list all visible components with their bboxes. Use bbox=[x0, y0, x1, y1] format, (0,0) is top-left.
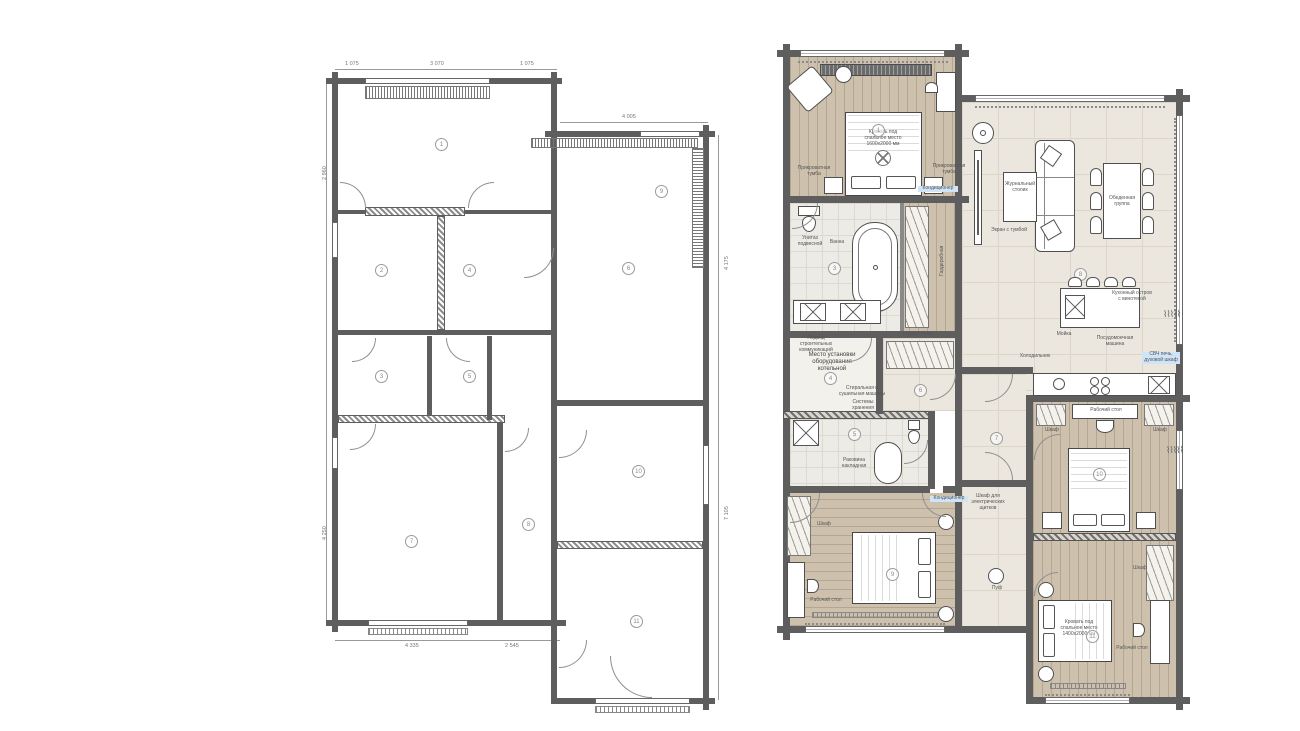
burner bbox=[1101, 386, 1110, 395]
wall-hatched bbox=[1033, 533, 1176, 541]
pillow bbox=[851, 176, 881, 189]
dining-chair bbox=[1090, 216, 1102, 234]
wall-interior bbox=[338, 330, 557, 335]
dim-label: 4 335 bbox=[405, 643, 419, 649]
floor-lamp-center bbox=[980, 130, 986, 136]
curtain-wave bbox=[1045, 690, 1130, 696]
bed3 bbox=[1068, 448, 1130, 532]
bed4-chair bbox=[1133, 623, 1145, 637]
closet-label: Шкаф bbox=[1128, 566, 1152, 572]
door-arc bbox=[505, 428, 529, 452]
dim-label: 4 175 bbox=[724, 256, 730, 270]
dim-label: 7 105 bbox=[724, 506, 730, 520]
room-number: 6 bbox=[622, 262, 635, 275]
ac-label: Кондиционер bbox=[918, 186, 958, 192]
window bbox=[800, 50, 945, 57]
room-number: 10 bbox=[632, 465, 645, 478]
dim-label: 2 960 bbox=[322, 166, 328, 180]
room-number: 4 bbox=[824, 372, 837, 385]
desk-label: Рабочий стол bbox=[1084, 408, 1128, 414]
dim-label: 4 005 bbox=[622, 114, 636, 120]
room-number: 2 bbox=[375, 264, 388, 277]
island-sink bbox=[1065, 295, 1085, 319]
wall-hatched bbox=[437, 216, 445, 330]
curtain-band bbox=[812, 612, 938, 618]
bed3-wardrobe bbox=[1036, 404, 1066, 426]
coffee-table bbox=[1003, 172, 1037, 222]
nightstand-label: Прикроватная тумба bbox=[793, 166, 835, 178]
tv-screen bbox=[977, 160, 979, 235]
desk-label: Рабочий стол bbox=[806, 598, 846, 604]
floorplan-canvas: 1 075 3 070 1 075 4 005 2 960 4 250 4 33… bbox=[0, 0, 1300, 731]
room-number: 4 bbox=[463, 264, 476, 277]
wall-interior bbox=[1026, 395, 1190, 402]
bar-stool bbox=[1068, 277, 1082, 287]
bathtub-drain bbox=[873, 265, 878, 270]
stool bbox=[925, 82, 938, 93]
window bbox=[368, 620, 468, 626]
room-number: 6 bbox=[914, 384, 927, 397]
window bbox=[1176, 430, 1183, 490]
window bbox=[703, 445, 709, 505]
burner bbox=[1090, 386, 1099, 395]
sink-label: Мойка bbox=[1052, 332, 1076, 338]
bed4-wardrobe bbox=[1146, 545, 1174, 601]
vanity-sink bbox=[800, 303, 826, 321]
wall-hatched bbox=[557, 541, 703, 549]
dining-chair bbox=[1142, 216, 1154, 234]
room-number: 9 bbox=[655, 185, 668, 198]
burner bbox=[1101, 377, 1110, 386]
pouf-label: Пуф bbox=[990, 586, 1004, 592]
wall-hatched bbox=[338, 415, 505, 423]
room-number: 3 bbox=[828, 262, 841, 275]
fridge-label: Холодильник bbox=[1016, 354, 1054, 360]
door-arc bbox=[340, 182, 366, 208]
wall bbox=[332, 72, 338, 632]
dim-label: 2 545 bbox=[505, 643, 519, 649]
desk-label: Рабочий стол bbox=[1112, 646, 1152, 652]
vanity-sink bbox=[840, 303, 866, 321]
pillow bbox=[886, 176, 916, 189]
dining-chair bbox=[1142, 192, 1154, 210]
nightstand-round bbox=[938, 606, 954, 622]
wall-interior bbox=[928, 411, 935, 489]
curtain-wave bbox=[805, 619, 945, 625]
wall-interior bbox=[943, 486, 962, 493]
room-number: 11 bbox=[630, 615, 643, 628]
coffee-table-label: Журнальный столик bbox=[1004, 182, 1036, 194]
dim-line-top2 bbox=[560, 122, 708, 123]
wall-interior bbox=[487, 336, 492, 420]
window bbox=[365, 78, 490, 84]
window bbox=[1045, 697, 1130, 704]
room-number: 3 bbox=[375, 370, 388, 383]
wardrobe-rail bbox=[905, 206, 929, 328]
wall-hatched bbox=[783, 411, 935, 419]
bar-stool bbox=[1086, 277, 1100, 287]
curtain-wave bbox=[798, 57, 948, 63]
wall-interior bbox=[962, 480, 1033, 487]
window bbox=[805, 626, 945, 633]
burner bbox=[1090, 377, 1099, 386]
room-number: 1 bbox=[435, 138, 448, 151]
window bbox=[332, 222, 338, 258]
curtain-wave bbox=[975, 102, 1165, 108]
sofa-line bbox=[1036, 215, 1074, 216]
dishwasher-label: Посудомоечная машина bbox=[1090, 336, 1140, 348]
room-number: 9 bbox=[886, 568, 899, 581]
utilities-label: Подвод строительных коммуникаций bbox=[794, 336, 838, 353]
room-number: 11 bbox=[1086, 630, 1099, 643]
sofa-line bbox=[1036, 177, 1074, 178]
wardrobe-label: Гардеробная bbox=[940, 246, 946, 276]
room-number: 10 bbox=[1093, 468, 1106, 481]
wardrobe-label: Гардеробная bbox=[898, 332, 938, 338]
wardrobe-hatch bbox=[531, 138, 698, 148]
door-arc bbox=[559, 430, 587, 458]
window-sill bbox=[595, 706, 690, 713]
dim-label: 3 070 bbox=[430, 61, 444, 67]
hall-wardrobe bbox=[886, 341, 954, 369]
room-number: 5 bbox=[463, 370, 476, 383]
room-number: 8 bbox=[522, 518, 535, 531]
balcony-hatch bbox=[365, 86, 490, 99]
pillow bbox=[1101, 514, 1125, 526]
closet-label: Шкаф bbox=[1148, 428, 1172, 434]
radiator-coil: ⌇⌇⌇⌇⌇ bbox=[1163, 312, 1173, 342]
dim-label: 1 075 bbox=[345, 61, 359, 67]
window-sill bbox=[368, 628, 468, 635]
closet-label: Шкаф bbox=[1040, 428, 1064, 434]
door-arc bbox=[524, 248, 554, 278]
door-arc bbox=[610, 656, 652, 698]
wall-interior bbox=[427, 336, 432, 416]
bed3-wardrobe bbox=[1144, 404, 1174, 426]
pillow bbox=[1073, 514, 1097, 526]
dining-chair bbox=[1090, 192, 1102, 210]
oven-label: СВЧ печь, духовой шкаф bbox=[1142, 352, 1180, 364]
bed2-desk bbox=[787, 562, 805, 618]
dim-label: 1 075 bbox=[520, 61, 534, 67]
dining-label: Обеденная группа bbox=[1106, 196, 1138, 208]
nightstand-round bbox=[1038, 666, 1054, 682]
basin-label: Раковина накладная bbox=[836, 458, 872, 470]
window bbox=[640, 131, 700, 137]
dim-line-right bbox=[718, 135, 719, 700]
bar-stool bbox=[1122, 277, 1136, 287]
wall-interior bbox=[783, 486, 930, 493]
bed2-chair bbox=[807, 579, 819, 593]
bed3-chair bbox=[1096, 420, 1114, 433]
window bbox=[332, 437, 338, 469]
dim-line-top bbox=[335, 69, 557, 70]
door-arc bbox=[559, 640, 587, 668]
nightstand bbox=[1042, 512, 1062, 529]
toilet-label: Унитаз подвесной bbox=[792, 236, 828, 248]
bathtub bbox=[852, 222, 898, 312]
tv-label: Экран с тумбой bbox=[986, 228, 1032, 234]
dresser bbox=[936, 72, 956, 112]
nightstand-label: Прикроватная тумба bbox=[928, 164, 970, 176]
dim-label: 4 250 bbox=[322, 526, 328, 540]
storage-label: Системы хранения bbox=[846, 400, 880, 412]
door-arc bbox=[350, 424, 376, 450]
ceiling-fan-icon bbox=[875, 150, 891, 166]
washing-machine bbox=[793, 420, 819, 446]
wall-interior bbox=[783, 196, 969, 203]
bathtub2 bbox=[874, 442, 902, 484]
closet-label: Шкаф bbox=[812, 522, 836, 528]
wall-interior bbox=[551, 400, 709, 406]
curtain-band bbox=[1050, 683, 1126, 689]
pillow bbox=[918, 571, 931, 598]
nightstand bbox=[1136, 512, 1156, 529]
counter-sink bbox=[1053, 378, 1065, 390]
wall-interior bbox=[962, 367, 1033, 374]
bar-stool bbox=[1104, 277, 1118, 287]
dim-line-bottom bbox=[335, 640, 560, 641]
nightstand bbox=[824, 177, 843, 194]
fridge bbox=[1148, 376, 1170, 394]
wall bbox=[497, 418, 503, 626]
room-number: 5 bbox=[848, 428, 861, 441]
room-number: 1 bbox=[872, 124, 885, 137]
toilet2-tank bbox=[908, 420, 920, 430]
elec-label: Шкаф для электрических щитков bbox=[966, 494, 1010, 511]
dining-chair bbox=[1142, 168, 1154, 186]
room-number: 7 bbox=[405, 535, 418, 548]
pouf bbox=[988, 568, 1004, 584]
wardrobe-hatch bbox=[692, 148, 704, 268]
wall-hatched bbox=[365, 207, 465, 216]
washer-label: Стиральная и сушильная машины bbox=[836, 386, 888, 398]
wall-thin bbox=[900, 203, 904, 331]
dining-chair bbox=[1090, 168, 1102, 186]
wall bbox=[1026, 395, 1033, 704]
wall bbox=[551, 72, 557, 704]
pillow bbox=[918, 538, 931, 565]
bed4-desk bbox=[1150, 600, 1170, 664]
room-number: 7 bbox=[990, 432, 1003, 445]
wall bbox=[955, 44, 962, 633]
island-label: Кухонный остров с винотекой bbox=[1110, 291, 1154, 303]
window bbox=[595, 698, 690, 704]
radiator-coil: ⌇⌇⌇⌇⌇ bbox=[1166, 448, 1176, 478]
door-arc bbox=[446, 338, 470, 362]
door-arc bbox=[352, 338, 376, 362]
pouf bbox=[835, 66, 852, 83]
window bbox=[975, 95, 1165, 102]
door-arc bbox=[468, 182, 494, 208]
